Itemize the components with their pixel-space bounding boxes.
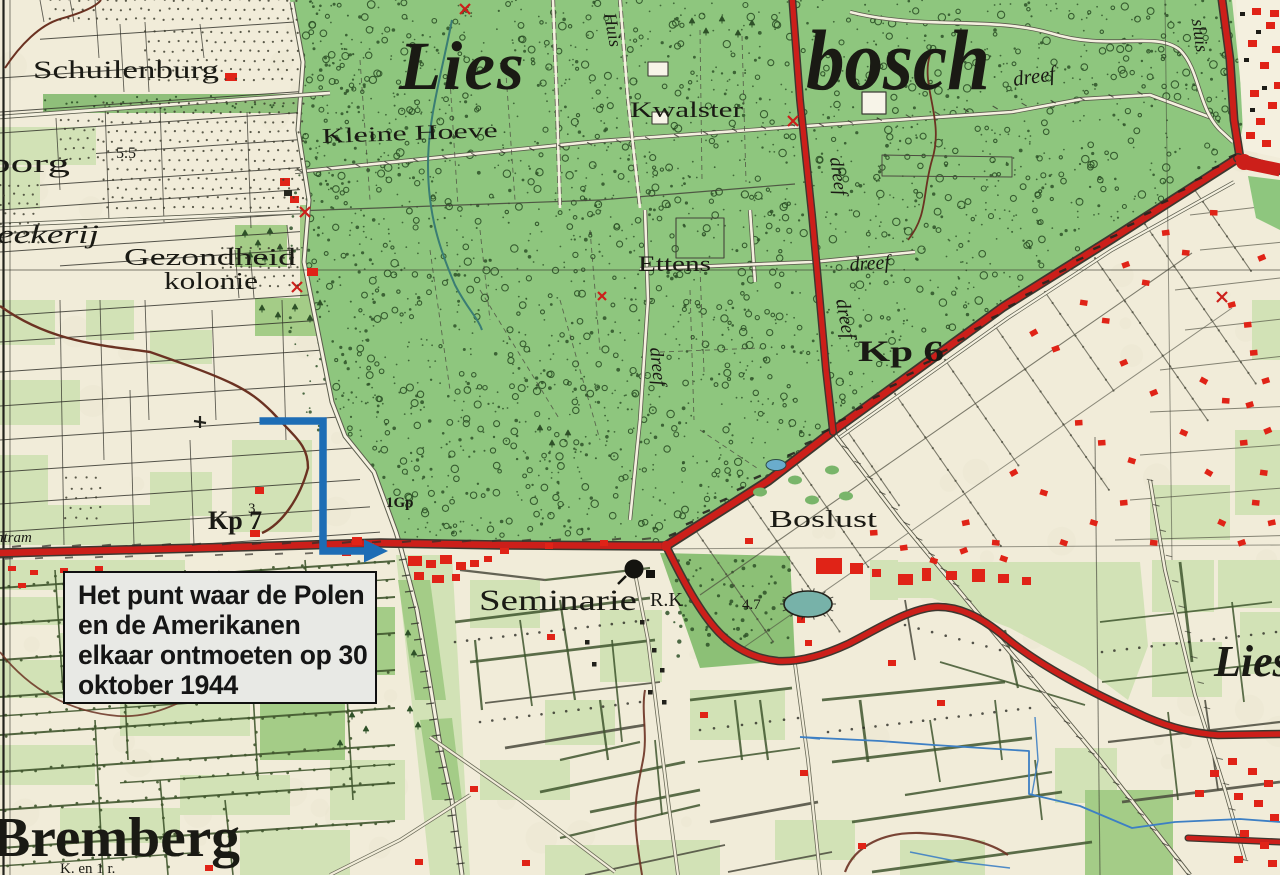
svg-text:kolonie: kolonie (164, 269, 258, 295)
svg-text:Kp 6: Kp 6 (858, 335, 944, 368)
svg-text:Bremberg: Bremberg (0, 807, 240, 869)
svg-text:dreef: dreef (849, 251, 893, 276)
svg-text:3: 3 (248, 501, 256, 517)
svg-text:1Gp: 1Gp (386, 495, 414, 511)
svg-text:borg: borg (0, 149, 70, 178)
svg-text:4.7: 4.7 (742, 597, 761, 613)
svg-text:Gezondheid: Gezondheid (124, 245, 296, 271)
svg-text:Boslust: Boslust (769, 507, 877, 533)
svg-text:bosch: bosch (806, 12, 990, 108)
svg-text:Kwalster: Kwalster (630, 97, 744, 122)
svg-text:K. en 1 r.: K. en 1 r. (60, 861, 115, 875)
svg-text:ntram: ntram (0, 530, 32, 546)
svg-text:Lies: Lies (1213, 637, 1280, 686)
svg-text:Ettens: Ettens (638, 251, 711, 276)
svg-text:5.5: 5.5 (116, 145, 136, 162)
svg-text:dreef: dreef (645, 346, 670, 389)
svg-text:R.K: R.K (650, 589, 683, 611)
svg-text:Lies: Lies (398, 28, 526, 104)
svg-text:eekerij: eekerij (0, 220, 99, 249)
svg-text:Seminarie: Seminarie (479, 584, 637, 617)
svg-text:Schuilenburg: Schuilenburg (33, 57, 220, 84)
